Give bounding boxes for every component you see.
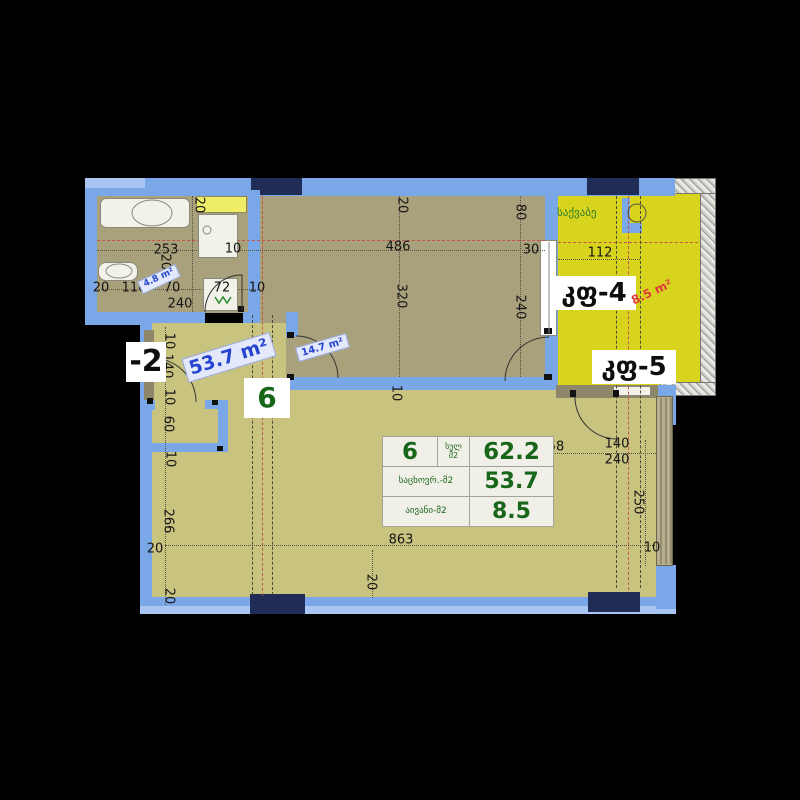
dimension-label: 20 <box>93 282 110 295</box>
door-hinge <box>544 328 552 334</box>
dimension-label: 20 <box>193 197 206 214</box>
dimension-label: 10 <box>163 389 176 406</box>
boiler-room-label: საქვაბე <box>557 207 596 218</box>
dimension-label: 266 <box>162 509 175 534</box>
unit-number-label: 6 <box>244 378 290 418</box>
balcony-glazing-right <box>700 178 716 396</box>
dimension-label: 30 <box>523 244 540 257</box>
column-top-right <box>587 178 639 195</box>
dimension-line <box>192 196 193 312</box>
door-hinge <box>570 390 576 397</box>
window-door-5-label: კფ-5 <box>592 350 676 384</box>
dimension-label: 20 <box>147 543 164 556</box>
dimension-label: 10 <box>390 385 403 402</box>
wall-left-upper <box>85 190 97 325</box>
table-total-header: სულ მ2 <box>438 437 470 467</box>
dimension-label: 10 <box>225 243 242 256</box>
toilet <box>98 262 138 281</box>
balcony-glazing-top <box>672 178 716 194</box>
wall-bedroom-bottom <box>286 377 558 390</box>
door-hinge <box>613 390 619 397</box>
axis-line <box>628 196 629 590</box>
neighbor-unit-label: -2 <box>126 342 166 382</box>
floor-plan: 20 253 204 10 20 110 70 240 72 10 20 486… <box>0 0 800 800</box>
table-living-label: საცხოვრ.-მ2 <box>383 467 470 497</box>
dimension-label: 486 <box>386 241 411 254</box>
dimension-label: 10 <box>249 282 266 295</box>
column-bottom-left <box>250 594 305 614</box>
dimension-label: 10 <box>164 451 177 468</box>
wall-top-outer-band <box>85 178 145 188</box>
dimension-label: 112 <box>588 247 613 260</box>
boiler-stub-wall-h <box>622 223 642 233</box>
door-hinge <box>238 306 244 312</box>
dimension-label: 10 <box>644 542 661 555</box>
niche-mark <box>212 400 218 405</box>
dimension-label: 20 <box>396 197 409 214</box>
dimension-label: 140 <box>605 438 630 451</box>
window-door-4-label: კფ-4 <box>552 276 636 310</box>
entry-jamb-bottom <box>144 380 154 400</box>
door-hinge <box>544 374 552 380</box>
area-summary-table: 6 სულ მ2 62.2 საცხოვრ.-მ2 53.7 აივანი-მ2… <box>382 436 554 527</box>
dimension-line <box>520 196 521 377</box>
table-living-value: 53.7 <box>470 467 554 497</box>
table-balcony-value: 8.5 <box>470 497 554 527</box>
wall-corner-bottom-right <box>656 565 676 609</box>
table-total-header-line2: მ2 <box>438 452 469 461</box>
door-hinge <box>147 398 153 404</box>
offset-line <box>640 196 641 588</box>
door-hinge <box>287 332 294 338</box>
table-unit-number: 6 <box>383 437 438 467</box>
dimension-label: 20 <box>163 588 176 605</box>
dimension-label: 70 <box>164 282 181 295</box>
dimension-label: 240 <box>168 298 193 311</box>
wall-bath-bedroom <box>248 190 260 323</box>
table-total-value: 62.2 <box>470 437 554 467</box>
table-balcony-label: აივანი-მ2 <box>383 497 470 527</box>
dimension-label: 863 <box>389 534 414 547</box>
dimension-label: 240 <box>605 454 630 467</box>
dimension-label: 240 <box>514 295 527 320</box>
dimension-label: 250 <box>632 490 645 515</box>
bathtub <box>100 198 190 228</box>
column-bottom-right <box>588 592 640 612</box>
wall-bath-bottom <box>97 312 205 323</box>
dimension-label: 60 <box>162 416 175 433</box>
axis-line <box>97 240 545 241</box>
dimension-label: 80 <box>514 204 527 221</box>
dimension-label: 20 <box>365 574 378 591</box>
dimension-label: 72 <box>214 282 231 295</box>
niche-mark <box>217 446 223 451</box>
dimension-label: 320 <box>395 284 408 309</box>
